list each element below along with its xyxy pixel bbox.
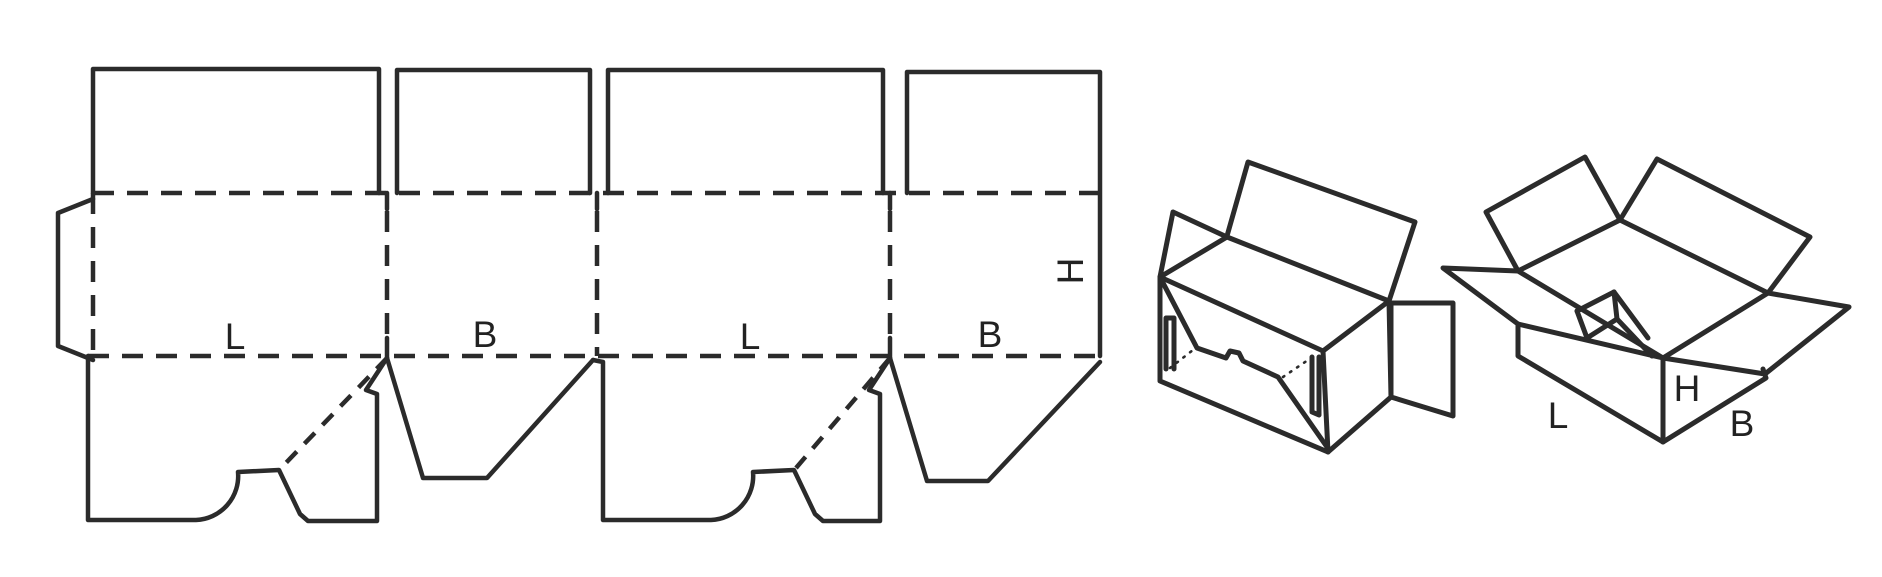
diagram-canvas: L B L B H [0,0,1882,577]
panel-label-l1: L [225,316,246,357]
extended-side-flap [1391,303,1453,416]
bottom-face-outline [1160,277,1328,452]
glue-flap [58,199,93,360]
crash-lock-flap-1 [88,356,387,521]
lock-hook-tab [1312,357,1319,415]
open-view-height-label: H [1674,368,1701,409]
opening-rim [1518,220,1768,358]
height-label: H [1050,258,1091,285]
lock-fold-diagonal-2 [796,358,890,468]
bottom-flap-b1 [387,358,593,478]
panel-label-l2: L [740,316,761,357]
dieline-cut-lines [58,69,1100,521]
lock-fold-dotted-right [1283,358,1311,377]
top-flap-4-and-right-edge [907,72,1100,356]
dieline-flat-drawing: L B L B H [58,69,1100,521]
open-view-breadth-label: B [1730,403,1755,444]
top-flap-2 [397,70,590,193]
top-flap-1 [93,69,379,193]
open-view-length-label: L [1548,395,1569,436]
opening-rim [1160,237,1389,351]
assembled-box-view [1160,162,1453,452]
bottom-flap-b2 [890,358,1100,481]
front-right-flap [1663,293,1849,374]
open-box-view: L H B [1443,157,1849,444]
top-flap-3 [608,70,883,193]
lock-edge-lines [1161,279,1327,447]
raised-back-flap [1227,162,1415,301]
crash-lock-flap-2 [593,358,890,521]
back-right-flap [1620,159,1810,293]
lock-slot-notch [1166,318,1174,369]
box-dieline-diagram: L B L B H [0,0,1882,577]
panel-label-b1: B [473,314,498,355]
panel-label-b2: B [978,314,1003,355]
lock-fold-diagonal-1 [281,358,387,468]
